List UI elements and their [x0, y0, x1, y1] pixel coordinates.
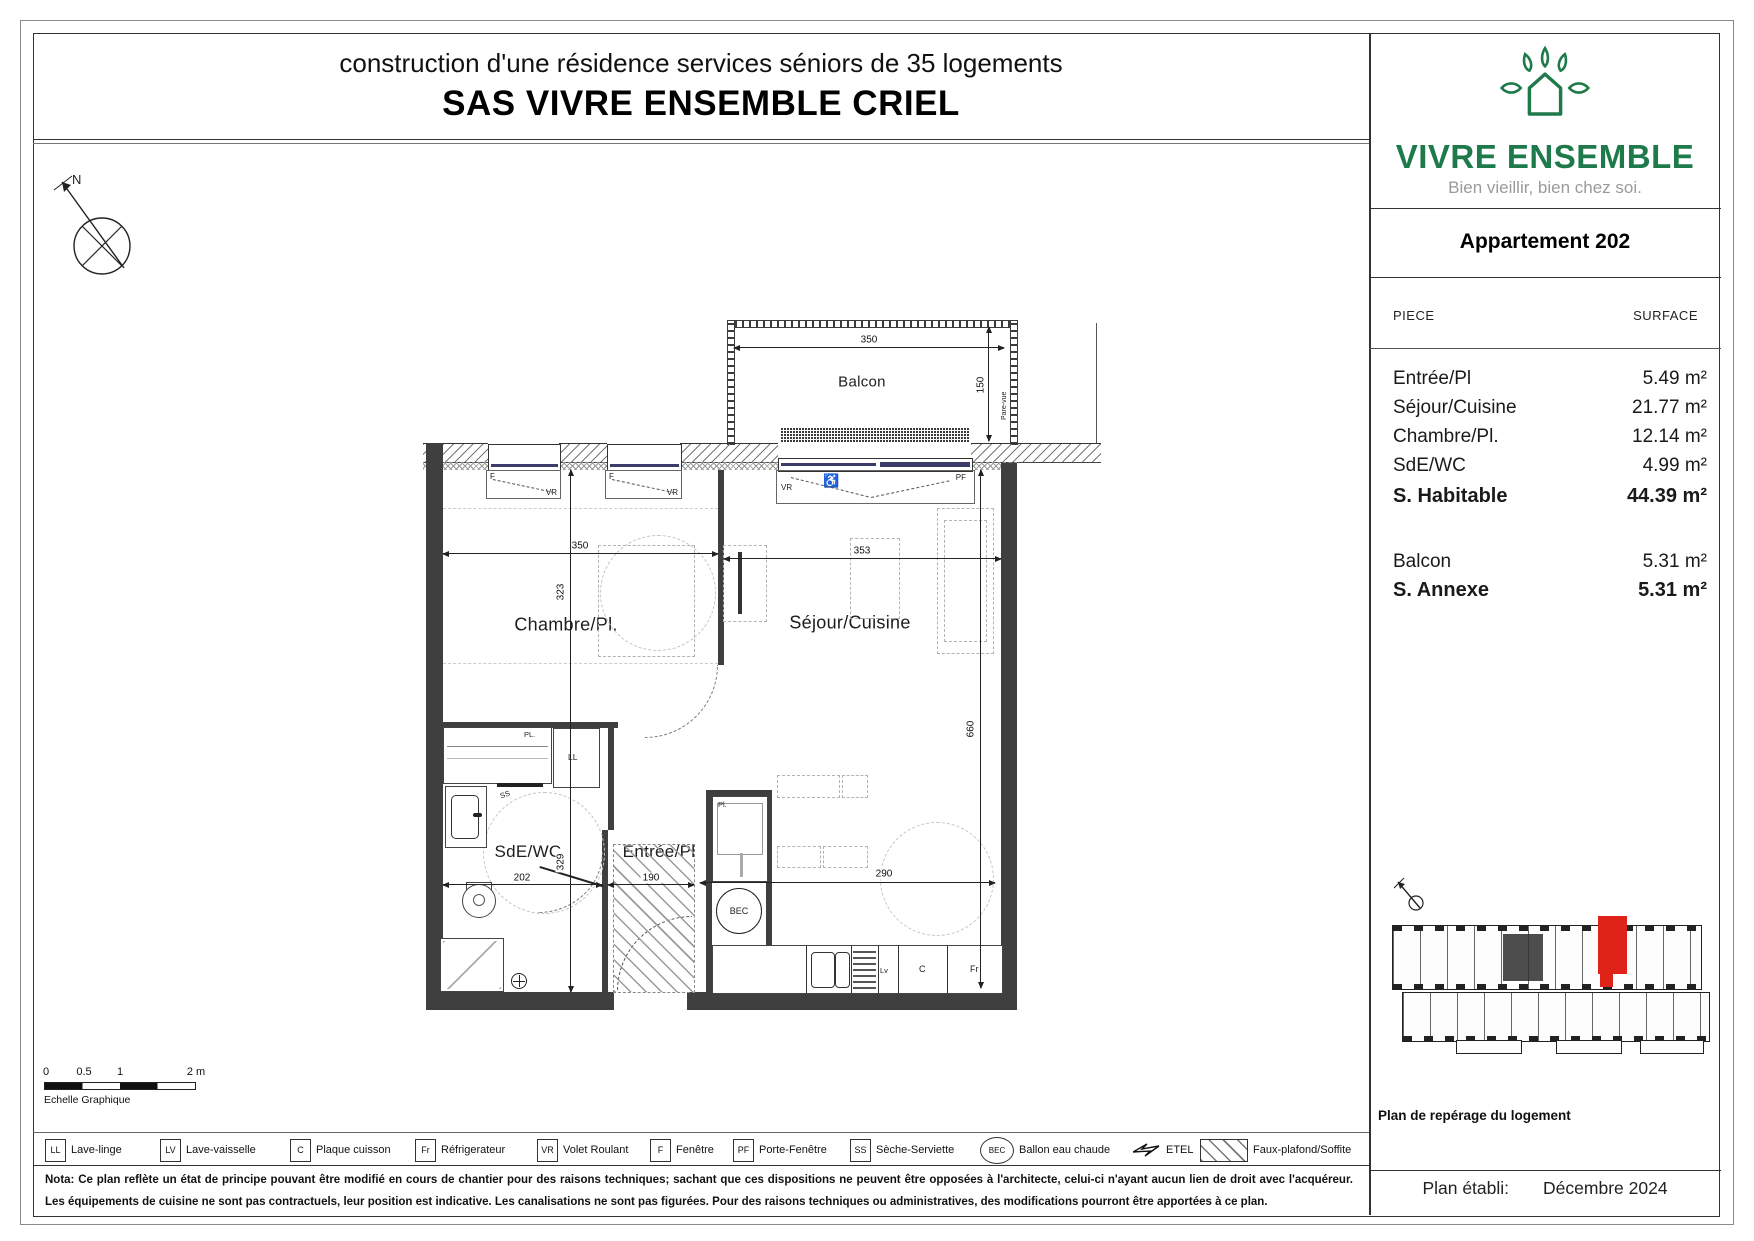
window-sejour-annotation: VR ♿ PF: [776, 470, 975, 504]
scale-bar-graphic: [44, 1082, 196, 1090]
dim-sejour-width: [724, 558, 1001, 559]
fridge-label: Fr: [970, 964, 979, 974]
legend-symbol: LL: [45, 1139, 66, 1162]
legend-symbol: F: [650, 1139, 671, 1162]
header-piece: PIECE: [1393, 308, 1435, 323]
vanity-sink: [445, 786, 487, 848]
upper-cabinet-4: [823, 846, 868, 868]
window-chambre-1: [488, 444, 561, 471]
legend-item-pf: PF Porte-Fenêtre: [733, 1136, 827, 1164]
table-row: Entrée/Pl 5.49 m²: [1393, 364, 1707, 393]
legend-item-ss: SS Sèche-Serviette: [850, 1136, 954, 1164]
entry-closet-label: Pl.: [718, 800, 727, 809]
row-label: S. Annexe: [1393, 579, 1489, 602]
closet-sde: [443, 727, 552, 784]
shower-drain: [511, 973, 527, 989]
dim-chambre-width: [443, 553, 718, 554]
divider-nota-top: [33, 1165, 1369, 1166]
established-label: Plan établi:: [1422, 1178, 1509, 1199]
wall-top-3: [680, 443, 778, 463]
north-letter: N: [72, 172, 81, 187]
row-label: Balcon: [1393, 551, 1451, 573]
wall-chambre-entree: [608, 728, 614, 830]
legend-label: Volet Roulant: [563, 1144, 628, 1156]
legend-symbol: PF: [733, 1139, 754, 1162]
dim-label-350-balcony: 350: [859, 335, 880, 346]
dim-label-660: 660: [966, 719, 977, 740]
turning-circle-sejour: [880, 822, 994, 936]
row-value: 5.49 m²: [1643, 368, 1707, 390]
scale-05: 0.5: [76, 1066, 91, 1078]
header-surface: SURFACE: [1633, 308, 1698, 323]
divider-table-header: [1369, 348, 1721, 349]
keyplan-caption: Plan de repérage du logement: [1378, 1108, 1571, 1123]
surface-table-header: PIECE SURFACE: [1393, 308, 1698, 323]
row-label: Entrée/Pl: [1393, 368, 1471, 390]
legend-label: Réfrigerateur: [441, 1144, 505, 1156]
row-label: SdE/WC: [1393, 455, 1466, 477]
dim-sejour-depth: [980, 470, 981, 988]
north-compass-icon: N: [52, 170, 152, 300]
closet-sde-label: PL.: [524, 730, 535, 739]
keyplan-stair-2: [1556, 1040, 1622, 1054]
wall-top-2: [559, 443, 607, 463]
divider-sidebar: [1369, 33, 1371, 1215]
wall-bottom-right: [687, 992, 1017, 1010]
water-heater: BEC: [716, 888, 762, 934]
dim-label-190: 190: [641, 873, 662, 884]
divider-apt-bottom: [1369, 277, 1721, 278]
table-row: SdE/WC 4.99 m²: [1393, 451, 1707, 480]
legend-symbol: BEC: [980, 1137, 1014, 1164]
wall-top-inner-3: [680, 462, 778, 470]
table-row: Séjour/Cuisine 21.77 m²: [1393, 393, 1707, 422]
pare-vue-label: Pare-vue: [1001, 392, 1008, 420]
legend-item-fr: Fr Réfrigerateur: [415, 1136, 505, 1164]
row-label: Séjour/Cuisine: [1393, 397, 1517, 419]
tv-screen: [738, 552, 742, 614]
legend-label: Lave-linge: [71, 1144, 122, 1156]
separation-line: [1096, 323, 1097, 443]
shower-tray: [440, 938, 504, 992]
dim-label-202: 202: [512, 873, 533, 884]
entry-soffit-hatch: [614, 845, 694, 992]
guide-line: [443, 663, 718, 664]
row-value: 5.31 m²: [1643, 551, 1707, 573]
cooktop-label: C: [919, 964, 926, 974]
guide-line: [443, 508, 718, 509]
balcony-screen: [780, 427, 970, 443]
legend-item-faux-plafond: Faux-plafond/Soffite: [1200, 1136, 1351, 1164]
row-value: 12.14 m²: [1632, 426, 1707, 448]
legend-item-etel: ETEL: [1133, 1136, 1194, 1164]
scale-0: 0: [43, 1066, 49, 1078]
balcony-rail-right: [1010, 320, 1018, 445]
dim-balcony-depth: [988, 327, 989, 441]
balcony-rail-left: [727, 320, 735, 445]
dim-label-150: 150: [976, 375, 987, 396]
divider-logo-bottom: [1369, 208, 1721, 209]
legend-symbol: SS: [850, 1139, 871, 1162]
legend-item-vr: VR Volet Roulant: [537, 1136, 628, 1164]
divider-title-bottom: [33, 139, 1369, 140]
table-row: Chambre/Pl. 12.14 m²: [1393, 422, 1707, 451]
room-label-balcon: Balcon: [838, 374, 886, 391]
wall-right: [1001, 463, 1017, 1010]
brand-logo-icon: [1493, 40, 1597, 136]
apartment-title: Appartement 202: [1369, 230, 1721, 254]
row-value: 4.99 m²: [1643, 455, 1707, 477]
bed-outline: [598, 545, 695, 657]
tag-pf: PF: [956, 473, 966, 482]
scale-1: 1: [117, 1066, 123, 1078]
project-subtitle: construction d'une résidence services sé…: [33, 48, 1369, 79]
etel-legend-icon: [1133, 1142, 1161, 1158]
dim-label-350: 350: [570, 541, 591, 552]
table-row: Balcon 5.31 m²: [1393, 547, 1707, 576]
dim-label-323: 323: [556, 582, 567, 603]
upper-cabinet-2: [842, 775, 868, 798]
plan-established: Plan établi: Décembre 2024: [1369, 1178, 1721, 1199]
wall-left: [426, 443, 443, 1010]
keyplan-stair-3: [1640, 1040, 1704, 1054]
legend-symbol: VR: [537, 1139, 558, 1162]
water-heater-label: BEC: [730, 906, 749, 916]
plan-sheet: construction d'une résidence services sé…: [0, 0, 1754, 1241]
legend-item-ll: LL Lave-linge: [45, 1136, 122, 1164]
faux-plafond-legend-icon: [1200, 1139, 1248, 1162]
kitchen-sink: [811, 952, 835, 988]
dim-label-353: 353: [852, 546, 873, 557]
upper-cabinet-1: [777, 775, 840, 798]
window-chambre-2: [607, 444, 682, 471]
keyplan-north-icon: [1392, 876, 1426, 912]
kitchen-counter: Lv C Fr: [712, 945, 1003, 994]
project-title: SAS VIVRE ENSEMBLE CRIEL: [33, 84, 1369, 124]
surface-table: Entrée/Pl 5.49 m² Séjour/Cuisine 21.77 m…: [1393, 364, 1707, 605]
divider-legend-top: [33, 1132, 1369, 1133]
legend-label: Lave-vaisselle: [186, 1144, 256, 1156]
legend-label: Porte-Fenêtre: [759, 1144, 827, 1156]
keyplan-highlight-unit: [1598, 916, 1627, 974]
divider-established-top: [1369, 1170, 1721, 1171]
legend-label: Ballon eau chaude: [1019, 1144, 1110, 1156]
dim-balcony-width: [734, 347, 1004, 348]
dim-entree-width: [608, 884, 694, 885]
dim-kitchen-width: [700, 882, 995, 883]
table-row-habitable: S. Habitable 44.39 m²: [1393, 482, 1707, 511]
upper-cabinet-3: [777, 846, 821, 868]
legend-label: Faux-plafond/Soffite: [1253, 1144, 1351, 1156]
legend-symbol: LV: [160, 1139, 181, 1162]
row-value: 21.77 m²: [1632, 397, 1707, 419]
row-label: Chambre/Pl.: [1393, 426, 1499, 448]
legend-symbol: C: [290, 1139, 311, 1162]
wall-bottom-left: [426, 992, 614, 1010]
scale-bar-caption: Echelle Graphique: [44, 1094, 130, 1106]
nota-text: Nota: Ce plan reflète un état de princip…: [45, 1169, 1353, 1214]
brand-tagline: Bien vieillir, bien chez soi.: [1369, 178, 1721, 198]
keyplan-highlight-notch: [1600, 974, 1613, 987]
balcony-rail-top: [727, 320, 1018, 328]
scale-2m: 2 m: [187, 1066, 205, 1078]
legend-item-c: C Plaque cuisson: [290, 1136, 391, 1164]
legend-item-bec: BEC Ballon eau chaude: [980, 1136, 1110, 1164]
dim-label-290: 290: [874, 869, 895, 880]
wall-top-inner-2: [559, 462, 607, 470]
dishwasher-hatch: [853, 950, 876, 989]
brand-name: VIVRE ENSEMBLE: [1369, 138, 1721, 176]
row-value: 5.31 m²: [1638, 579, 1707, 602]
tag-vr: VR: [781, 483, 792, 492]
legend-label: Plaque cuisson: [316, 1144, 391, 1156]
towel-rail: [497, 783, 543, 787]
legend-symbol: Fr: [415, 1139, 436, 1162]
dim-chambre-sde-depth: [570, 470, 571, 992]
row-value: 44.39 m²: [1627, 485, 1707, 508]
dim-label-329: 329: [556, 852, 567, 873]
legend-label: Fenêtre: [676, 1144, 714, 1156]
table-row-annexe: S. Annexe 5.31 m²: [1393, 576, 1707, 605]
dishwasher-label: Lv: [880, 966, 888, 975]
wall-top-4: [971, 443, 1101, 463]
established-date: Décembre 2024: [1543, 1178, 1668, 1199]
window-chambre-1-annotation: F VR: [486, 470, 561, 499]
window-chambre-2-annotation: F VR: [605, 470, 682, 499]
legend-item-f: F Fenêtre: [650, 1136, 714, 1164]
legend-label: Sèche-Serviette: [876, 1144, 954, 1156]
legend-label: ETEL: [1166, 1144, 1194, 1156]
divider-title-bottom2: [33, 143, 1369, 144]
legend-item-lv: LV Lave-vaisselle: [160, 1136, 256, 1164]
row-label: S. Habitable: [1393, 485, 1507, 508]
dim-sde-width: [443, 884, 602, 885]
keyplan-stair-1: [1456, 1040, 1522, 1054]
